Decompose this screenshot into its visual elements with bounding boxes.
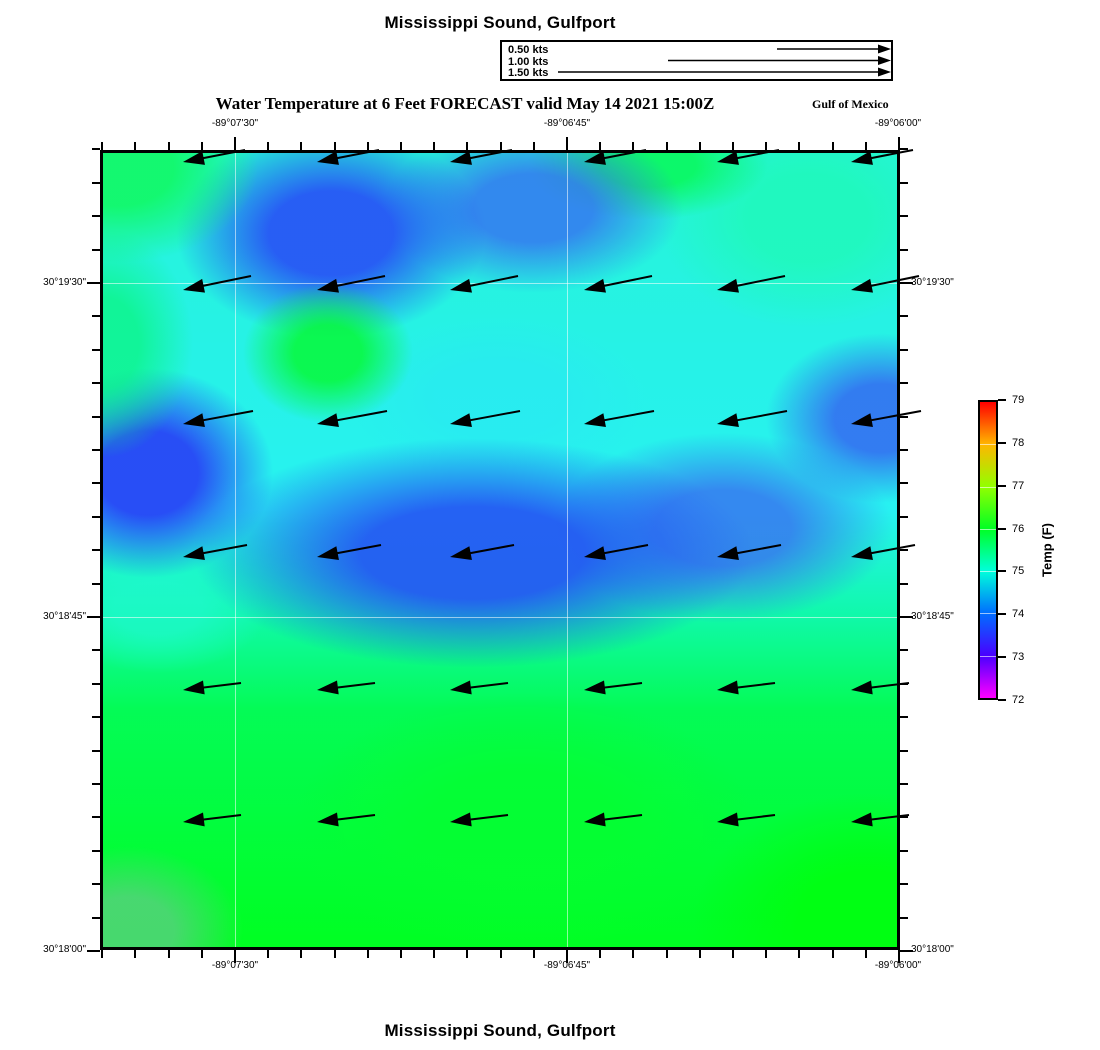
axis-tick: [900, 850, 908, 852]
page-title: Mississippi Sound, Gulfport: [100, 13, 900, 33]
colorbar-gridline: [980, 656, 996, 657]
axis-tick: [765, 142, 767, 150]
forecast-plot-page: Mississippi Sound, Gulfport 0.50 kts 1.0…: [0, 0, 1100, 1050]
axis-tick: [900, 583, 908, 585]
x-axis-tick-label-top: -89°06'00": [853, 118, 943, 130]
axis-tick: [998, 399, 1006, 401]
axis-tick: [765, 950, 767, 958]
axis-tick: [699, 950, 701, 958]
x-axis-tick-label-bottom: -89°06'00": [853, 960, 943, 972]
meridian-gridline: [567, 153, 568, 947]
axis-tick: [699, 142, 701, 150]
axis-tick: [433, 142, 435, 150]
axis-tick: [92, 315, 100, 317]
axis-tick: [632, 142, 634, 150]
legend-entry-label: 0.50 kts: [508, 45, 548, 56]
axis-tick: [201, 142, 203, 150]
colorbar-gridline: [980, 444, 996, 445]
axis-tick: [101, 142, 103, 150]
axis-tick: [900, 148, 908, 150]
y-axis-tick-label-right: 30°18'00": [911, 944, 983, 956]
colorbar-gridline: [980, 487, 996, 488]
x-axis-tick-label-top: -89°07'30": [190, 118, 280, 130]
axis-tick: [900, 516, 908, 518]
axis-tick: [900, 349, 908, 351]
colorbar-tick-label: 75: [1012, 564, 1024, 578]
axis-tick: [300, 950, 302, 958]
axis-tick: [798, 142, 800, 150]
axis-tick: [92, 416, 100, 418]
legend-entry-label: 1.00 kts: [508, 57, 548, 68]
axis-tick: [92, 583, 100, 585]
x-axis-tick-label-top: -89°06'45": [522, 118, 612, 130]
axis-tick: [400, 142, 402, 150]
axis-tick: [134, 950, 136, 958]
axis-tick: [732, 142, 734, 150]
axis-tick: [92, 783, 100, 785]
axis-tick: [832, 950, 834, 958]
axis-tick: [92, 249, 100, 251]
y-axis-tick-label-left: 30°18'45": [14, 611, 86, 623]
y-axis-tick-label-right: 30°19'30": [911, 277, 983, 289]
axis-tick: [134, 142, 136, 150]
colorbar-tick-label: 77: [1012, 479, 1024, 493]
axis-tick: [168, 950, 170, 958]
axis-tick: [900, 416, 908, 418]
colorbar-gridline: [980, 529, 996, 530]
axis-tick: [433, 950, 435, 958]
y-axis-tick-label-left: 30°19'30": [14, 277, 86, 289]
gulf-of-mexico-label: Gulf of Mexico: [812, 97, 889, 112]
axis-tick: [533, 950, 535, 958]
axis-tick: [92, 649, 100, 651]
axis-tick: [92, 449, 100, 451]
colorbar-gridline: [980, 571, 996, 572]
axis-tick: [201, 950, 203, 958]
axis-tick: [87, 950, 100, 952]
axis-tick: [367, 950, 369, 958]
axis-tick: [87, 616, 100, 618]
axis-tick: [998, 528, 1006, 530]
colorbar-tick-label: 74: [1012, 607, 1024, 621]
y-axis-tick-label-right: 30°18'45": [911, 611, 983, 623]
meridian-gridline: [235, 153, 236, 947]
axis-tick: [87, 282, 100, 284]
temperature-heatmap: [100, 150, 900, 950]
axis-tick: [101, 950, 103, 958]
axis-tick: [666, 142, 668, 150]
axis-tick: [900, 549, 908, 551]
axis-tick: [92, 182, 100, 184]
axis-tick: [466, 142, 468, 150]
footer-title: Mississippi Sound, Gulfport: [100, 1021, 900, 1041]
axis-tick: [566, 137, 568, 150]
axis-tick: [92, 917, 100, 919]
axis-tick: [533, 142, 535, 150]
colorbar-tick-label: 79: [1012, 393, 1024, 407]
axis-tick: [599, 142, 601, 150]
axis-tick: [865, 142, 867, 150]
axis-tick: [168, 142, 170, 150]
axis-tick: [998, 699, 1006, 701]
axis-tick: [998, 570, 1006, 572]
axis-tick: [92, 750, 100, 752]
axis-tick: [234, 137, 236, 150]
axis-tick: [334, 142, 336, 150]
axis-tick: [599, 950, 601, 958]
axis-tick: [92, 883, 100, 885]
axis-tick: [500, 950, 502, 958]
axis-tick: [900, 816, 908, 818]
axis-tick: [732, 950, 734, 958]
axis-tick: [900, 783, 908, 785]
axis-tick: [92, 816, 100, 818]
axis-tick: [832, 142, 834, 150]
axis-tick: [92, 716, 100, 718]
axis-tick: [900, 215, 908, 217]
axis-tick: [632, 950, 634, 958]
axis-tick: [900, 449, 908, 451]
axis-tick: [865, 950, 867, 958]
colorbar-tick-label: 72: [1012, 693, 1024, 707]
colorbar-axis-label: Temp (F): [1040, 523, 1055, 577]
axis-tick: [92, 349, 100, 351]
axis-tick: [900, 917, 908, 919]
axis-tick: [900, 182, 908, 184]
y-axis-tick-label-left: 30°18'00": [14, 944, 86, 956]
axis-tick: [300, 142, 302, 150]
colorbar-tick-label: 76: [1012, 522, 1024, 536]
axis-tick: [900, 716, 908, 718]
axis-tick: [900, 382, 908, 384]
axis-tick: [900, 249, 908, 251]
axis-tick: [666, 950, 668, 958]
axis-tick: [92, 516, 100, 518]
axis-tick: [92, 549, 100, 551]
axis-tick: [998, 656, 1006, 658]
axis-tick: [900, 482, 908, 484]
axis-tick: [900, 750, 908, 752]
axis-tick: [334, 950, 336, 958]
axis-tick: [92, 850, 100, 852]
axis-tick: [92, 382, 100, 384]
axis-tick: [798, 950, 800, 958]
colorbar-tick-label: 73: [1012, 650, 1024, 664]
axis-tick: [400, 950, 402, 958]
axis-tick: [267, 142, 269, 150]
legend-entry-label: 1.50 kts: [508, 68, 548, 79]
colorbar-tick-label: 78: [1012, 436, 1024, 450]
axis-tick: [998, 442, 1006, 444]
axis-tick: [92, 215, 100, 217]
axis-tick: [998, 613, 1006, 615]
axis-tick: [500, 142, 502, 150]
axis-tick: [367, 142, 369, 150]
axis-tick: [900, 683, 908, 685]
axis-tick: [267, 950, 269, 958]
axis-tick: [92, 148, 100, 150]
x-axis-tick-label-bottom: -89°07'30": [190, 960, 280, 972]
parallel-gridline: [103, 283, 897, 284]
x-axis-tick-label-bottom: -89°06'45": [522, 960, 612, 972]
axis-tick: [466, 950, 468, 958]
current-speed-legend: 0.50 kts 1.00 kts 1.50 kts: [500, 40, 893, 81]
axis-tick: [900, 883, 908, 885]
axis-tick: [92, 683, 100, 685]
axis-tick: [92, 482, 100, 484]
axis-tick: [900, 315, 908, 317]
axis-tick: [900, 649, 908, 651]
plot-subtitle: Water Temperature at 6 Feet FORECAST val…: [100, 94, 830, 114]
temperature-colorbar: [978, 400, 998, 700]
parallel-gridline: [103, 617, 897, 618]
axis-tick: [998, 485, 1006, 487]
